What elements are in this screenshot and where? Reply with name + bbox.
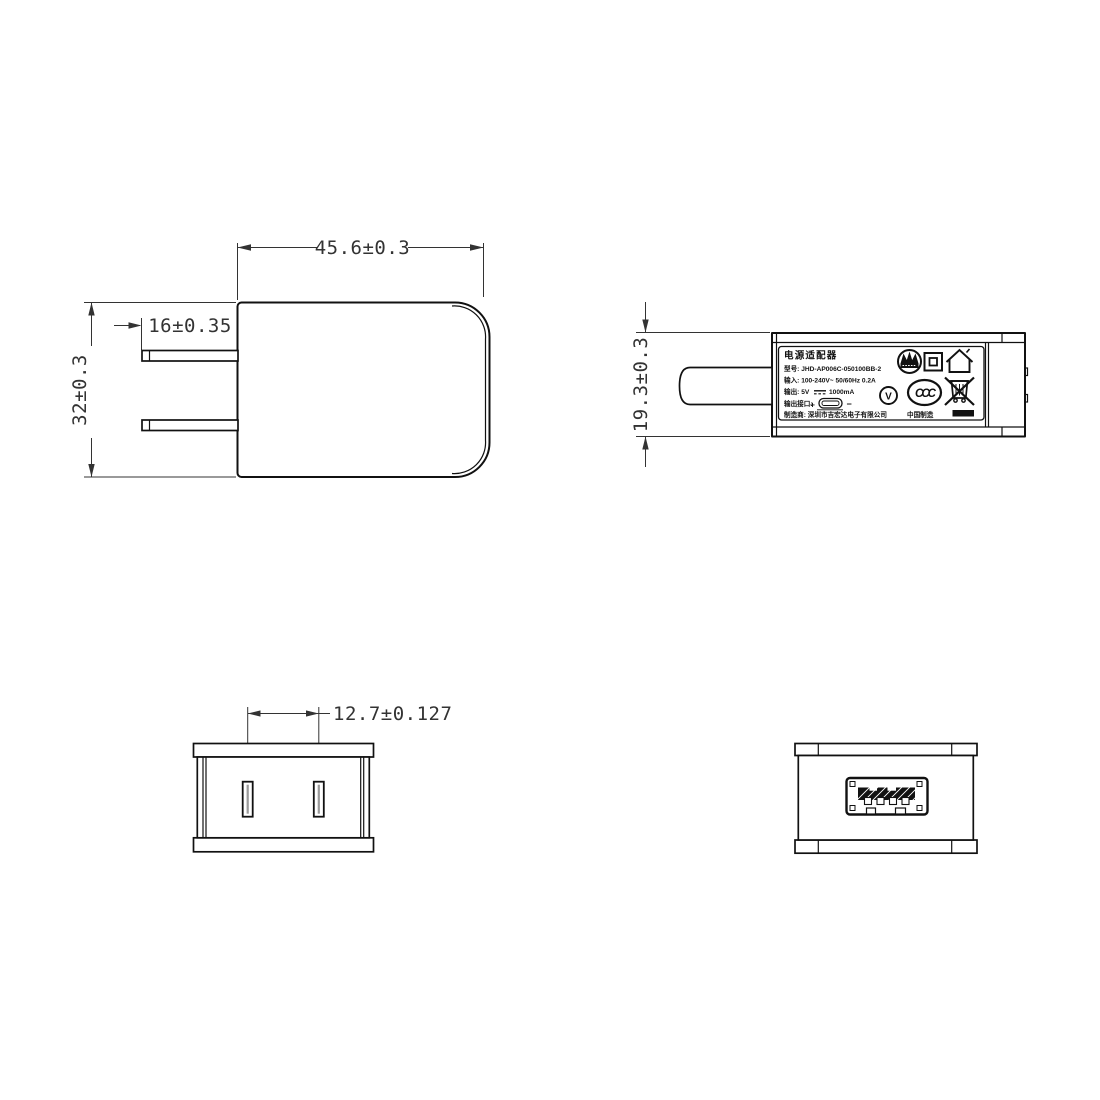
arrowhead: [470, 244, 484, 251]
product-label: 电源适配器 型号: JHD-AP006C-050100BB-2 输入: 100-…: [779, 347, 985, 421]
port-bottom-tab: [896, 808, 906, 814]
side-view: 19.3±0.3 电源适配器 型号: JHD-AP006C-050100BB-2…: [630, 302, 1028, 467]
arrowhead: [642, 437, 648, 450]
front-view: 45.6±0.3 16±0.35 32±0.3: [69, 237, 490, 477]
certification-circle-icon: [898, 350, 921, 373]
bottom-cap: [795, 840, 977, 853]
lower-prong: [142, 420, 238, 431]
port-corner-square: [917, 806, 922, 811]
arrowhead: [88, 464, 94, 477]
label-title: 电源适配器: [784, 350, 838, 362]
height-dim-text: 32±0.3: [69, 354, 91, 426]
plug-face-body: [197, 757, 369, 838]
usb-contact-pin: [865, 798, 872, 805]
black-bar-mark: [953, 410, 975, 417]
usb-a-port: [847, 778, 928, 815]
tongue-notch: [888, 788, 897, 791]
double-insulation-icon: [925, 353, 943, 371]
thickness-dim-text: 19.3±0.3: [630, 337, 652, 433]
usb-contact-pin: [890, 798, 897, 805]
prong-spacing-dim-text: 12.7±0.127: [333, 703, 452, 725]
outer-square: [925, 353, 943, 371]
arrowhead: [248, 710, 261, 716]
arrowhead: [642, 320, 648, 333]
top-cap: [194, 744, 374, 758]
ccc-letters: CCC: [915, 388, 937, 400]
dimension-width: 45.6±0.3: [238, 237, 484, 300]
arrowhead: [129, 322, 142, 328]
polarity-plus-text: +: [810, 400, 815, 410]
label-manufacturer: 制造商: 深圳市吉宏达电子有限公司: [784, 410, 887, 419]
port-corner-square: [850, 782, 855, 787]
usb-edge-notch: [1025, 395, 1028, 403]
label-port-prefix: 输出接口:: [784, 399, 813, 408]
arrowhead: [238, 244, 252, 251]
tongue-notch: [870, 788, 878, 791]
plug-prong-side: [680, 368, 773, 405]
prong-length-dim-text: 16±0.35: [148, 315, 232, 337]
drawing-canvas: 45.6±0.3 16±0.35 32±0.3: [0, 0, 1100, 1100]
width-dim-text: 45.6±0.3: [315, 237, 411, 259]
usb-contact-pin: [902, 798, 909, 805]
label-model: 型号: JHD-AP006C-050100BB-2: [784, 364, 881, 373]
ccc-mark-icon: CCC: [908, 380, 941, 405]
upper-prong: [142, 351, 238, 362]
label-input: 输入: 100-240V~ 50/60Hz 0.2A: [784, 376, 876, 385]
adapter-drawing-svg: 45.6±0.3 16±0.35 32±0.3: [0, 0, 1100, 1100]
v-letter: V: [885, 391, 892, 402]
arrowhead: [306, 710, 319, 716]
port-bottom-tab: [867, 808, 876, 814]
adapter-body-front: [238, 303, 490, 478]
label-output-prefix: 输出: 5V: [784, 387, 810, 396]
usb-contact-pin: [877, 798, 884, 805]
top-cap: [795, 744, 977, 756]
usb-edge-notch: [1025, 368, 1028, 376]
label-made-in: 中国制造: [907, 410, 934, 419]
polarity-minus-text: −: [847, 399, 852, 409]
efficiency-v-icon: V: [880, 387, 897, 404]
arrowhead: [88, 303, 94, 316]
port-corner-square: [850, 806, 855, 811]
bottom-cap: [194, 838, 374, 852]
label-output-suffix: 1000mA: [829, 389, 855, 396]
bottom-plug-view: 12.7±0.127: [194, 703, 453, 852]
plug-prongs-front: [142, 351, 238, 431]
port-corner-square: [917, 782, 922, 787]
bottom-usb-view: [795, 744, 977, 854]
